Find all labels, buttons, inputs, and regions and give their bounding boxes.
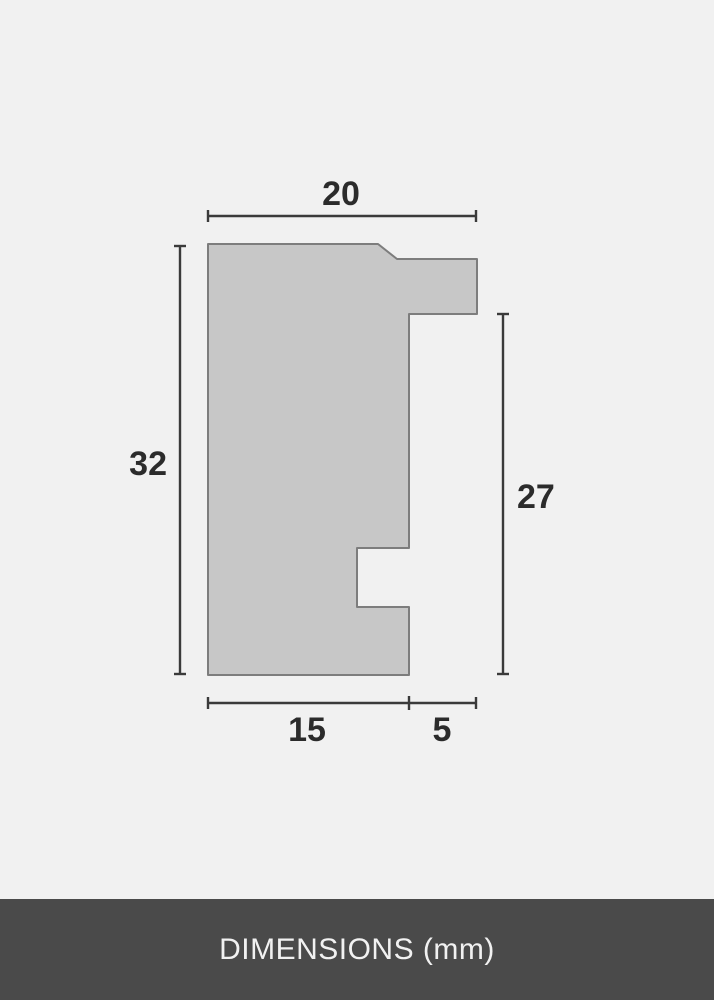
moulding-profile-shape [208,244,477,675]
footer-caption-label: DIMENSIONS (mm) [219,933,495,967]
dimension-bottom: 15 5 [208,696,476,749]
product-dimension-image: 20 32 27 15 5 DIMENSIONS (mm) [0,0,714,1000]
dimension-left: 32 [129,246,186,674]
dimension-top-label: 20 [322,175,360,213]
dimension-top: 20 [208,175,476,222]
dimension-bottom-right-label: 5 [433,711,452,749]
moulding-profile-diagram: 20 32 27 15 5 [0,0,714,899]
dimension-right-label: 27 [517,478,555,516]
dimension-left-label: 32 [129,445,167,483]
dimension-right: 27 [497,314,555,674]
dimension-bottom-left-label: 15 [288,711,326,749]
footer-caption-bar: DIMENSIONS (mm) [0,899,714,1000]
